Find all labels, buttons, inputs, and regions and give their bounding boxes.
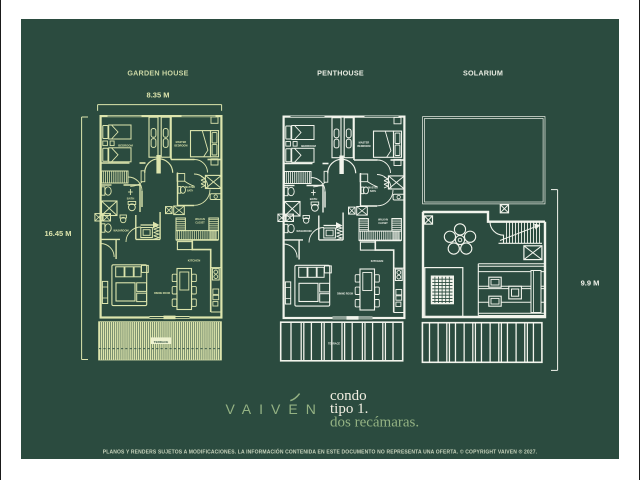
svg-text:SOLARIUM: SOLARIUM: [463, 68, 503, 77]
svg-text:PLANOS Y RENDERS SUJETOS A MOD: PLANOS Y RENDERS SUJETOS A MODIFICACIONE…: [103, 448, 538, 456]
svg-text:8.35 M: 8.35 M: [147, 91, 170, 100]
svg-text:GARDEN HOUSE: GARDEN HOUSE: [127, 68, 188, 77]
svg-text:VAIVEN: VAIVEN: [226, 401, 324, 417]
svg-text:TERRACE: TERRACE: [328, 342, 340, 345]
svg-text:PENTHOUSE: PENTHOUSE: [317, 68, 364, 77]
svg-text:TERRACE: TERRACE: [154, 340, 169, 344]
svg-text:16.45 M: 16.45 M: [44, 229, 71, 238]
svg-text:dos recámaras.: dos recámaras.: [330, 414, 419, 430]
svg-text:9.9 M: 9.9 M: [581, 279, 600, 288]
